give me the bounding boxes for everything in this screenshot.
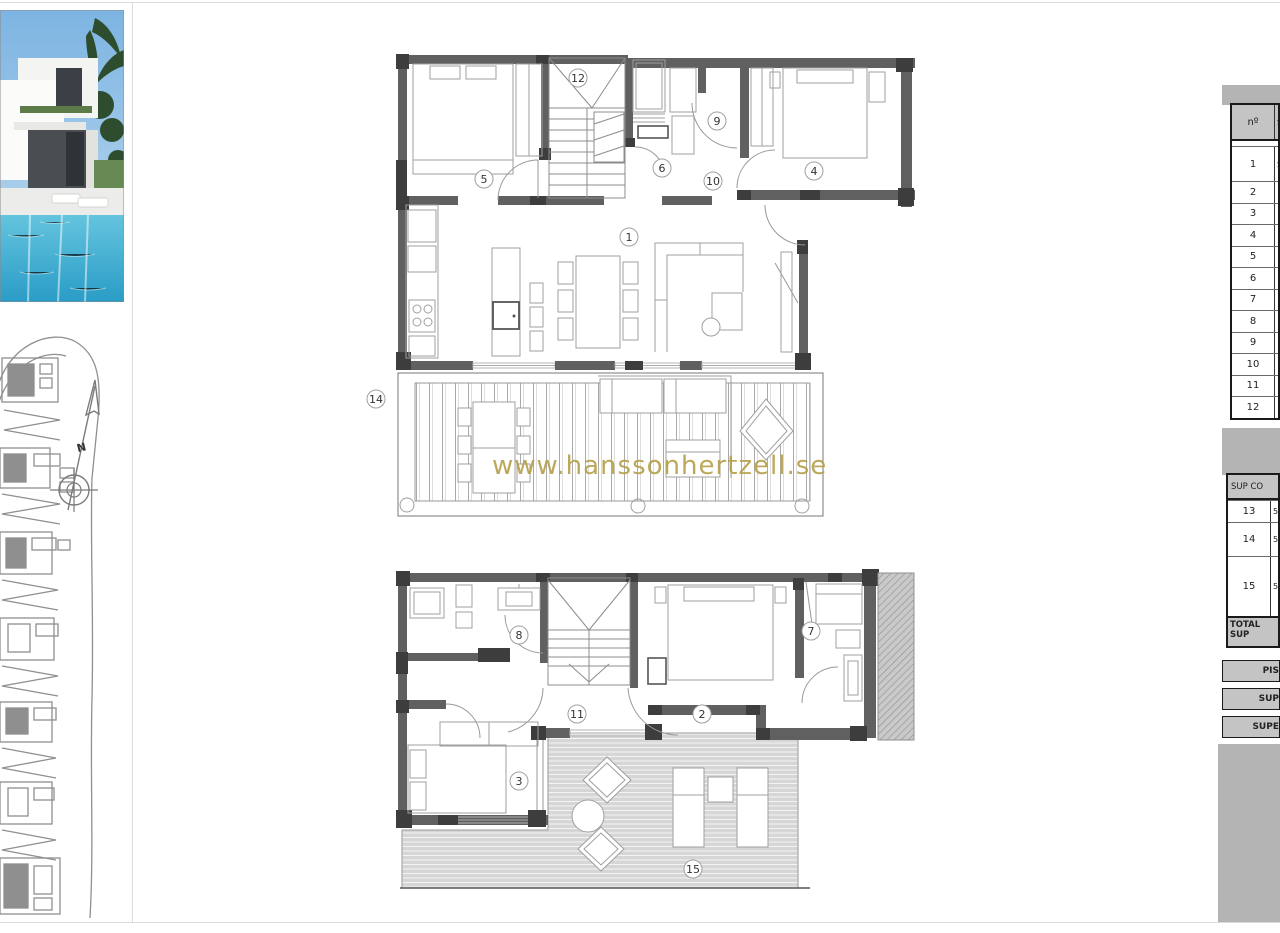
room-label-6: 6 — [659, 162, 666, 175]
room-label-7: 7 — [808, 625, 815, 638]
table-row: 1S — [1232, 146, 1278, 181]
table-row: 3 — [1232, 203, 1278, 225]
room-label-11: 11 — [570, 708, 584, 721]
table-row: 12 — [1232, 396, 1278, 418]
compass-letter: N — [75, 440, 87, 455]
table-row: 155 — [1228, 556, 1278, 616]
room-label-2: 2 — [699, 708, 706, 721]
summary-bar-2: SUP — [1222, 688, 1280, 710]
room-label-4: 4 — [811, 165, 818, 178]
lower-terrace — [400, 733, 810, 888]
room-label-9: 9 — [714, 115, 721, 128]
col-header-surface: S — [1274, 105, 1278, 139]
site-plan-units — [0, 358, 74, 914]
room-label-12: 12 — [571, 72, 585, 85]
room-label-10: 10 — [706, 175, 720, 188]
upper-terrace — [398, 373, 823, 516]
surface-table-2: SUP CO 135 145 155 TOTAL SUP — [1226, 473, 1280, 648]
table-row: 11 — [1232, 375, 1278, 397]
summary-bar-3: SUPE — [1222, 716, 1280, 738]
page-bottom-border — [0, 922, 1280, 923]
surface-table-1: nº S 1S 2 3 4 5 6 7 8 9 10 11 12 — [1230, 103, 1280, 420]
room-label-1: 1 — [626, 231, 633, 244]
lower-bedroom3-furniture — [408, 704, 538, 813]
site-plan: N — [0, 318, 132, 920]
floorplan-upper: 5 12 6 9 10 4 1 14 — [360, 45, 930, 530]
col-header-number: nº — [1232, 105, 1274, 139]
page-top-border — [0, 2, 1280, 3]
upper-bedroom4-furniture — [751, 68, 885, 158]
upper-living-kitchen-furniture — [406, 205, 792, 358]
table-row: 2 — [1232, 181, 1278, 203]
room-label-3: 3 — [516, 775, 523, 788]
table-row: 135 — [1228, 500, 1278, 522]
floorplan-lower: 8 7 11 2 3 15 — [360, 560, 930, 920]
room-label-14: 14 — [369, 393, 383, 406]
table-row: 6 — [1232, 267, 1278, 289]
table-row: 7 — [1232, 289, 1278, 311]
room-label-5: 5 — [481, 173, 488, 186]
table-row: 8 — [1232, 310, 1278, 332]
room-label-15: 15 — [686, 863, 700, 876]
summary-bar-1: PIS — [1222, 660, 1280, 682]
lower-stairs — [548, 578, 630, 685]
lower-bedroom2-furniture — [648, 585, 786, 684]
section2-header: SUP CO — [1228, 482, 1263, 492]
villa-photo — [0, 10, 124, 302]
table-row: 10 — [1232, 353, 1278, 375]
table-row: 145 — [1228, 522, 1278, 556]
room-label-8: 8 — [516, 629, 523, 642]
table-row: 5 — [1232, 246, 1278, 268]
table-row: 4 — [1232, 224, 1278, 246]
floorplan-document-page: N — [0, 0, 1280, 933]
lower-bathroom7-fixtures — [802, 582, 862, 703]
total-row: TOTAL SUP — [1228, 616, 1278, 646]
table-row: 9 — [1232, 332, 1278, 354]
left-panel-divider — [132, 2, 133, 922]
upper-bedroom5-furniture — [413, 64, 542, 174]
total-label: TOTAL SUP — [1230, 620, 1260, 640]
area-table-panel: nº S 1S 2 3 4 5 6 7 8 9 10 11 12 SUP CO … — [1218, 0, 1280, 933]
